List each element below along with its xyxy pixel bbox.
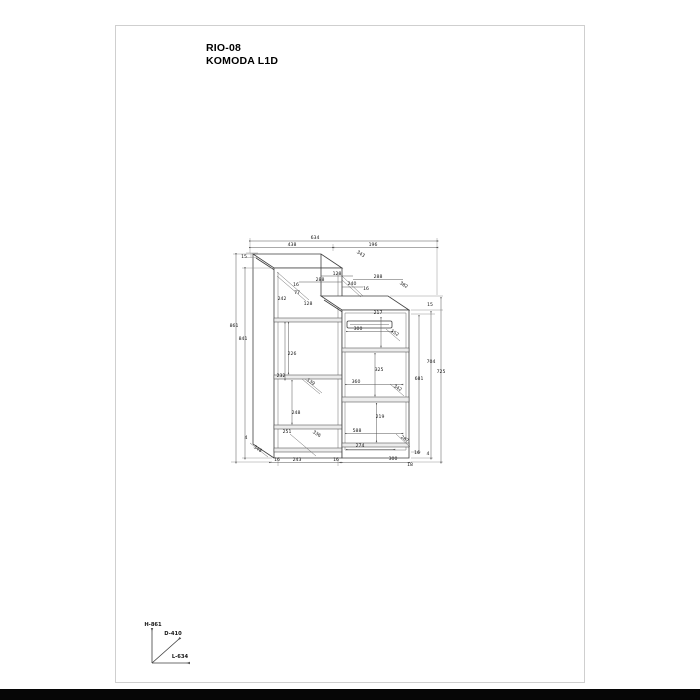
dim-label: 681 — [415, 376, 424, 382]
bottom-panel-edge — [342, 443, 409, 447]
dim-label: 18 — [407, 462, 413, 468]
dim-label: 77 — [294, 290, 300, 296]
dim-label: 704 — [427, 359, 436, 365]
dim-label: 242 — [278, 296, 287, 302]
dim-label: 360 — [352, 379, 361, 385]
dim-label: 16 — [414, 450, 420, 456]
dim-label: 4 — [245, 435, 248, 441]
height-axis-label: H-861 — [144, 622, 162, 628]
dim-label: 248 — [292, 410, 301, 416]
dim-label: 243 — [293, 457, 302, 463]
dim-label: 128 — [333, 271, 342, 277]
dim-label: 219 — [376, 414, 385, 420]
bottom-panel-edge — [274, 448, 342, 452]
dim-label: 196 — [369, 242, 378, 248]
shelf-edge — [342, 348, 409, 352]
dim-label: 240 — [348, 281, 357, 287]
dim-label: 343 — [355, 249, 366, 259]
shelf-edge — [274, 425, 342, 429]
dim-label: 4 — [427, 451, 430, 457]
bottom-bar — [0, 689, 700, 700]
shelf-edge — [342, 397, 409, 402]
dim-label: 300 — [354, 326, 363, 332]
dim-label: 348 — [252, 444, 263, 454]
dim-label: 861 — [230, 323, 239, 329]
dim-label: 288 — [316, 277, 325, 283]
axis-legend: H-861 D-410 L-634 — [144, 622, 188, 663]
dim-label: 226 — [288, 351, 297, 357]
dim-label: 128 — [304, 301, 313, 307]
dim-label: 16 — [274, 457, 280, 463]
dim-label: 16 — [293, 282, 299, 288]
depth-axis-label: D-410 — [164, 631, 182, 637]
dim-label: 16 — [333, 457, 339, 463]
dim-label: 841 — [239, 336, 248, 342]
dim-label: 251 — [283, 429, 292, 435]
dim-label: 725 — [437, 369, 446, 375]
dim-label: 274 — [356, 443, 365, 449]
shelf-edge — [274, 318, 342, 322]
technical-drawing: 6344381961534312828816240162883821577242… — [0, 0, 700, 700]
dim-label: 300 — [389, 456, 398, 462]
dim-label: 588 — [353, 428, 362, 434]
dim-label: 16 — [363, 286, 369, 292]
dim-label: 382 — [398, 280, 409, 290]
length-axis-label: L-634 — [172, 654, 189, 660]
screenshot-root: RIO-08 KOMODA L1D — [0, 0, 700, 700]
dim-label: 634 — [311, 235, 320, 241]
dim-label: 325 — [375, 367, 384, 373]
dim-label: 232 — [277, 373, 286, 379]
dim-label: 438 — [288, 242, 297, 248]
dim-label: 288 — [374, 274, 383, 280]
dim-label: 217 — [374, 310, 383, 316]
dim-label: 15 — [427, 302, 433, 308]
dim-label: 15 — [241, 254, 247, 260]
